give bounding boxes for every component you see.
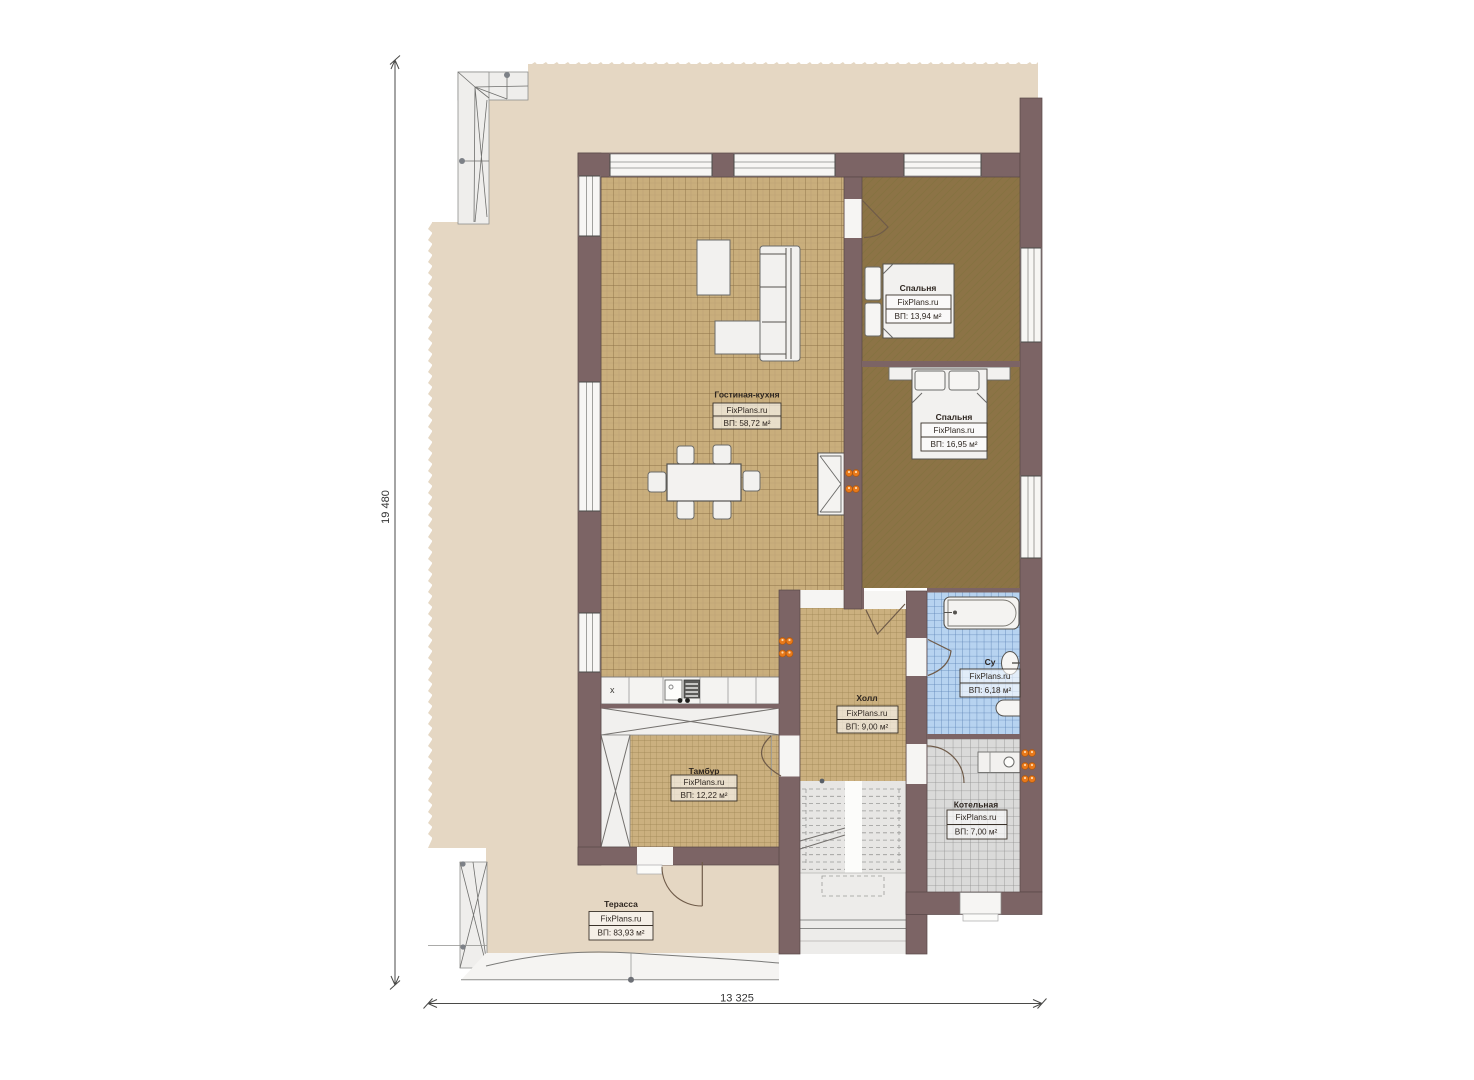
svg-text:FixPlans.ru: FixPlans.ru <box>727 406 768 415</box>
svg-text:FixPlans.ru: FixPlans.ru <box>601 915 642 924</box>
svg-text:19 480: 19 480 <box>380 490 392 524</box>
svg-text:FixPlans.ru: FixPlans.ru <box>847 709 888 718</box>
svg-text:ВП: 9,00 м²: ВП: 9,00 м² <box>846 723 889 732</box>
svg-text:FixPlans.ru: FixPlans.ru <box>934 426 975 435</box>
svg-text:ВП: 13,94 м²: ВП: 13,94 м² <box>894 312 941 321</box>
svg-text:ВП: 7,00 м²: ВП: 7,00 м² <box>955 828 998 837</box>
svg-text:FixPlans.ru: FixPlans.ru <box>956 813 997 822</box>
svg-text:Котельная: Котельная <box>954 800 999 810</box>
svg-text:FixPlans.ru: FixPlans.ru <box>898 298 939 307</box>
svg-text:ВП: 83,93 м²: ВП: 83,93 м² <box>597 929 644 938</box>
svg-text:Спальня: Спальня <box>936 412 973 422</box>
svg-text:x: x <box>610 685 615 695</box>
svg-text:FixPlans.ru: FixPlans.ru <box>684 778 725 787</box>
svg-text:FixPlans.ru: FixPlans.ru <box>970 672 1011 681</box>
svg-text:Тамбур: Тамбур <box>689 766 720 776</box>
svg-text:ВП: 58,72 м²: ВП: 58,72 м² <box>723 419 770 428</box>
svg-text:Терасса: Терасса <box>604 899 638 909</box>
svg-text:Холл: Холл <box>856 693 877 703</box>
svg-text:ВП: 6,18 м²: ВП: 6,18 м² <box>969 686 1012 695</box>
svg-text:ВП: 12,22 м²: ВП: 12,22 м² <box>680 791 727 800</box>
svg-text:ВП: 16,95 м²: ВП: 16,95 м² <box>930 440 977 449</box>
svg-text:13 325: 13 325 <box>720 993 754 1005</box>
svg-text:Су: Су <box>985 657 996 667</box>
svg-text:Гостиная-кухня: Гостиная-кухня <box>714 390 779 400</box>
svg-text:Спальня: Спальня <box>900 283 937 293</box>
